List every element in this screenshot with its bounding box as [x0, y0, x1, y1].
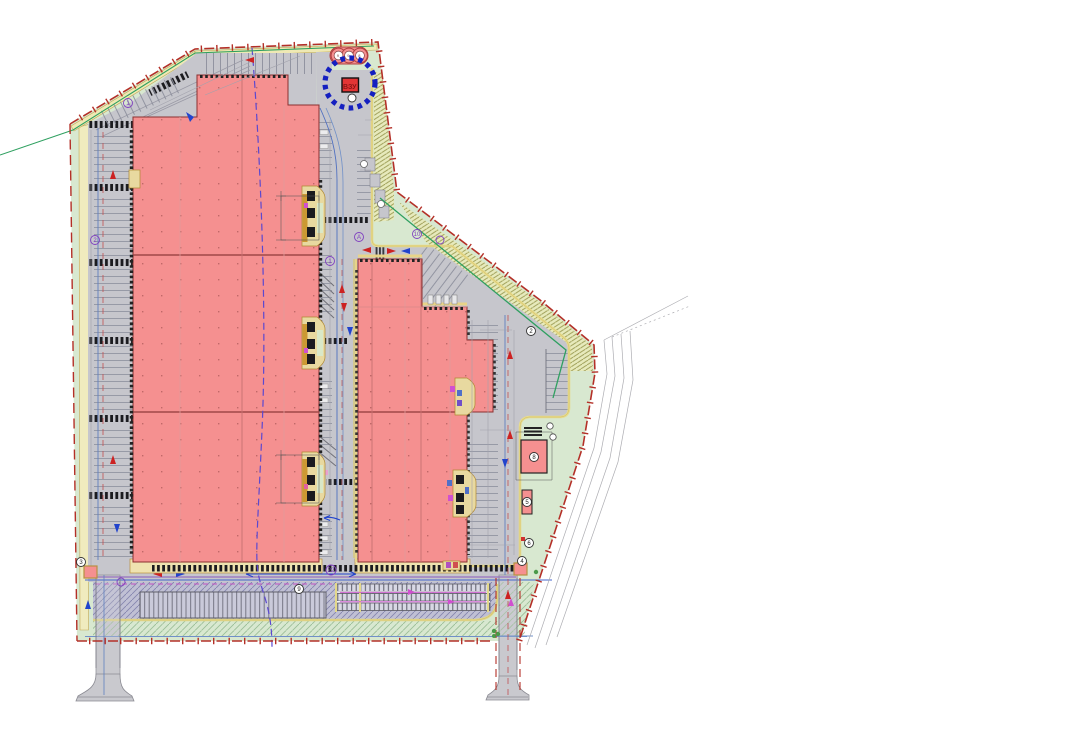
svg-text:ВЗУ: ВЗУ	[343, 84, 357, 91]
svg-text:A: A	[357, 235, 361, 241]
svg-text:10: 10	[414, 232, 421, 238]
svg-text:22: 22	[328, 568, 335, 574]
